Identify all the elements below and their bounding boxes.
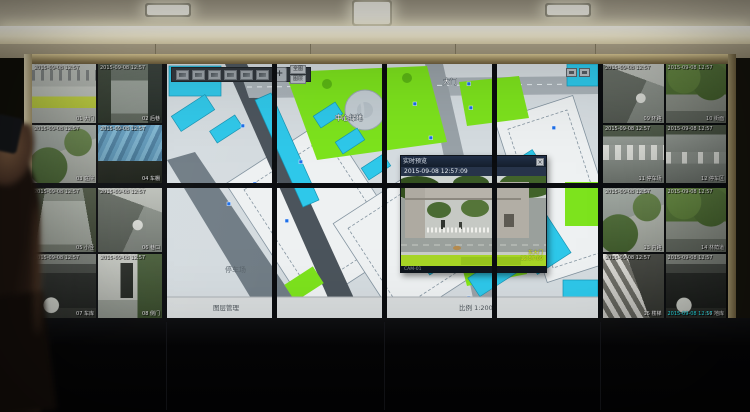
camera-tile[interactable]: 2015-09-08 12:5709 环路 — [603, 64, 664, 123]
camera-tile[interactable]: 2015-09-08 12:5714 林荫道 — [666, 188, 727, 252]
camera-tile[interactable]: 2015-09-08 12:5704 车棚 — [98, 125, 162, 184]
camera-tile[interactable]: 2015-09-08 12:5701 大门 — [32, 64, 96, 123]
videowall-frame-right — [728, 54, 736, 340]
map-status-left: 图层管理 — [213, 303, 240, 312]
map-label: 大门 — [443, 77, 457, 86]
pointer-tool-button[interactable] — [176, 70, 189, 80]
layer-tool-button[interactable] — [256, 70, 269, 80]
popup-timestamp: 2015-09-08 12:57:09 — [401, 167, 546, 176]
cove-light — [0, 26, 750, 44]
cabinet-seam — [600, 322, 601, 410]
zoom-in-tool-icon — [211, 73, 218, 77]
camera-marker-icon[interactable] — [285, 219, 289, 223]
tile-osd-time: 2015-09-08 12:57 — [605, 65, 650, 71]
measure-tool-icon — [243, 73, 250, 77]
tile-osd-name: 07 车库 — [76, 311, 94, 317]
monitor-bezel — [492, 64, 497, 318]
tile-osd-name: 01 大门 — [76, 116, 94, 122]
camera-marker-icon[interactable] — [227, 202, 231, 206]
camera-marker-icon[interactable] — [413, 102, 417, 106]
camera-tile[interactable]: 2015-09-08 12:5711 停车场 — [603, 125, 664, 184]
fullscreen-glyph — [582, 71, 587, 74]
camera-tile[interactable]: 2015-09-08 12:5716 地库2015-09-08 12:57 — [666, 254, 727, 318]
map-label: 中心绿地 — [335, 113, 363, 122]
popup-title: 实时预览 — [403, 157, 427, 167]
map-toolbar: + 全图图层 — [171, 67, 311, 82]
recessed-light — [545, 3, 591, 17]
tile-osd-time: 2015-09-08 12:57 — [605, 255, 650, 261]
monitor-bezel — [162, 64, 167, 318]
camera-marker-icon[interactable] — [299, 160, 303, 164]
popup-window[interactable]: 实时预览 × 2015-09-08 12:57:09 — [400, 155, 547, 273]
overview-glyph — [569, 71, 574, 74]
pointer-tool-icon — [179, 73, 186, 77]
map-corner-controls — [566, 68, 590, 77]
zoom-in-tool-button[interactable] — [208, 70, 221, 80]
recessed-light — [145, 3, 191, 17]
tile-osd-time: 2015-09-08 12:57 — [100, 189, 145, 195]
tile-osd-name: 13 内路 — [644, 245, 662, 251]
camera-marker-icon[interactable] — [552, 126, 556, 130]
camera-tile[interactable]: 2015-09-08 12:5710 街面 — [666, 64, 727, 123]
tile-osd-time: 2015-09-08 12:57 — [605, 126, 650, 132]
camera-marker-icon[interactable] — [429, 136, 433, 140]
tile-osd-name: 08 侧门 — [142, 311, 160, 317]
tile-osd-time: 2015-09-08 12:57 — [34, 189, 79, 195]
monitor-bezel — [272, 64, 277, 318]
camera-tile[interactable]: 2015-09-08 12:5715 楼梯 — [603, 254, 664, 318]
camera-tile[interactable]: 2015-09-08 12:5702 后巷 — [98, 64, 162, 123]
cabinet-seam — [384, 322, 385, 410]
tile-osd-time: 2015-09-08 12:57 — [34, 65, 79, 71]
tile-osd-name: 09 环路 — [644, 116, 662, 122]
camera-tile[interactable]: 2015-09-08 12:5703 庭院 — [32, 125, 96, 184]
light-glow — [547, 5, 589, 15]
tile-osd-time: 2015-09-08 12:57 — [100, 255, 145, 261]
layer-tool-icon — [259, 73, 266, 77]
map-toolbar-text-buttons: 全图图层 — [290, 65, 306, 84]
popup-video-osd: 东大门12:57:09 — [521, 250, 543, 262]
camera-marker-icon[interactable] — [467, 82, 471, 86]
control-room-photo: 2015-09-08 12:5701 大门2015-09-08 12:5702 … — [0, 0, 750, 412]
tile-osd-name: 05 小径 — [76, 245, 94, 251]
tile-osd-name: 14 林荫道 — [701, 245, 724, 251]
tile-osd-time: 2015-09-08 12:57 — [34, 126, 79, 132]
monitor-bezel — [382, 64, 387, 318]
tile-osd-time: 2015-09-08 12:57 — [668, 189, 713, 195]
camera-tile[interactable]: 2015-09-08 12:5713 内路 — [603, 188, 664, 252]
pan-tool-button[interactable] — [192, 70, 205, 80]
tile-osd-cyan: 2015-09-08 12:57 — [668, 311, 713, 317]
light-glow — [147, 5, 189, 15]
osd-line: 12:57:09 — [521, 256, 543, 262]
light-glow — [354, 2, 390, 24]
camera-panel-right-bottom: 2015-09-08 12:5713 内路2015-09-08 12:5714 … — [603, 188, 726, 318]
camera-tile[interactable]: 2015-09-08 12:5706 巷口 — [98, 188, 162, 252]
camera-tile[interactable]: 2015-09-08 12:5707 车库 — [32, 254, 96, 318]
tile-osd-name: 11 停车场 — [639, 176, 662, 182]
tile-osd-time: 2015-09-08 12:57 — [668, 126, 713, 132]
tile-osd-time: 2015-09-08 12:57 — [100, 65, 145, 71]
camera-panel-right-top: 2015-09-08 12:5709 环路2015-09-08 12:5710 … — [603, 64, 726, 183]
map-text-button[interactable]: 图层 — [290, 75, 306, 84]
close-icon[interactable]: × — [536, 158, 544, 166]
videowall-frame-top — [24, 54, 736, 64]
videowall-frame-left — [24, 54, 32, 340]
camera-panel-left-bottom: 2015-09-08 12:5705 小径2015-09-08 12:5706 … — [32, 188, 162, 318]
map-text-button[interactable]: 全图 — [290, 65, 306, 74]
recessed-light — [352, 0, 392, 26]
tile-osd-time: 2015-09-08 12:57 — [668, 255, 713, 261]
zoom-out-tool-icon — [227, 73, 234, 77]
tile-osd-name: 03 庭院 — [76, 176, 94, 182]
map-label: 停车场 — [225, 265, 246, 274]
tile-osd-name: 04 车棚 — [142, 176, 160, 182]
fullscreen-icon[interactable] — [579, 68, 590, 77]
tile-osd-name: 10 街面 — [706, 116, 724, 122]
tile-osd-time: 2015-09-08 12:57 — [34, 255, 79, 261]
monitor-bezel — [598, 64, 603, 318]
pan-tool-icon — [195, 73, 202, 77]
camera-tile[interactable]: 2015-09-08 12:5712 停车区 — [666, 125, 727, 184]
tile-osd-name: 06 巷口 — [142, 245, 160, 251]
tile-osd-time: 2015-09-08 12:57 — [605, 189, 650, 195]
camera-marker-icon[interactable] — [469, 106, 473, 110]
monitor-bezel-horizontal — [32, 183, 726, 188]
tile-osd-time: 2015-09-08 12:57 — [668, 65, 713, 71]
measure-tool-button[interactable] — [240, 70, 253, 80]
cabinet-seam — [166, 322, 167, 410]
popup-footer: CAM-01 — [401, 266, 546, 273]
camera-marker-icon[interactable] — [241, 124, 245, 128]
camera-panel-left-top: 2015-09-08 12:5701 大门2015-09-08 12:5702 … — [32, 64, 162, 183]
tile-osd-name: 02 后巷 — [142, 116, 160, 122]
camera-tile[interactable]: 2015-09-08 12:5708 侧门 — [98, 254, 162, 318]
tile-osd-time: 2015-09-08 12:57 — [100, 126, 145, 132]
tile-osd-name: 15 楼梯 — [644, 311, 662, 317]
popup-video-feed[interactable]: 东大门12:57:09 — [401, 176, 546, 266]
tile-osd-name: 12 停车区 — [701, 176, 724, 182]
camera-tile[interactable]: 2015-09-08 12:5705 小径 — [32, 188, 96, 252]
zoom-out-tool-button[interactable] — [224, 70, 237, 80]
popup-titlebar[interactable]: 实时预览 × — [401, 156, 546, 167]
overview-icon[interactable] — [566, 68, 577, 77]
videowall-cabinet-base — [0, 318, 750, 412]
